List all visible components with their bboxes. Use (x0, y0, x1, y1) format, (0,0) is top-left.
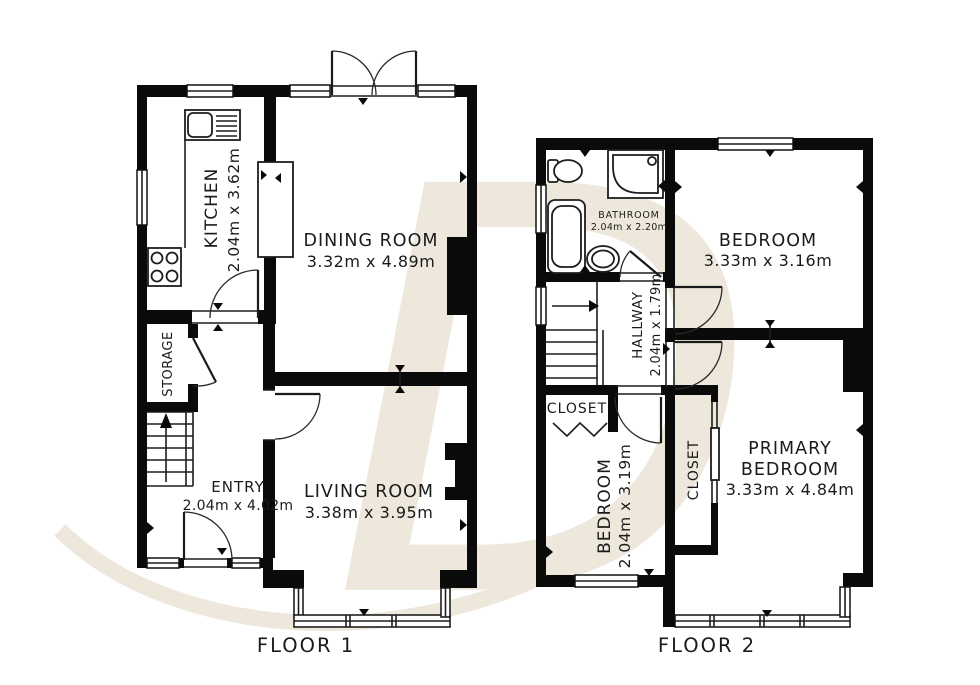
living-room-door (263, 390, 320, 440)
kitchen-left-window (137, 170, 147, 225)
toilet (548, 160, 582, 182)
shower (608, 150, 663, 198)
storage-door (193, 338, 216, 386)
small-bedroom-label: BEDROOM (595, 458, 615, 554)
primary-bedroom-label-line2: BEDROOM (741, 460, 839, 480)
small-bedroom-dims: 2.04m x 3.19m (616, 444, 634, 569)
bathroom-label: BATHROOM (598, 210, 659, 221)
bathroom-left-window (536, 185, 546, 233)
staircase-floor1 (147, 412, 193, 486)
floor1-title: FLOOR 1 (257, 634, 355, 657)
closet-hallway-label: CLOSET (547, 401, 607, 417)
front-door (184, 512, 232, 567)
hallway-label: HALLWAY (630, 291, 646, 359)
bedroom-top-window (718, 138, 793, 150)
hallway-left-window (536, 287, 546, 325)
bedroom-dims: 3.33m x 3.16m (704, 251, 833, 270)
hallway-dims: 2.04m x 1.79m (649, 273, 664, 376)
kitchen-label: KITCHEN (202, 168, 222, 249)
bedroom-label: BEDROOM (719, 231, 817, 251)
dining-top-window-left (290, 85, 330, 97)
dining-top-window-right (418, 85, 455, 97)
closet-primary-label: CLOSET (686, 440, 702, 500)
storage-label: STORAGE (161, 331, 176, 396)
living-room-label: LIVING ROOM (304, 482, 434, 502)
bathtub (548, 200, 585, 273)
living-room-dims: 3.38m x 3.95m (305, 503, 434, 522)
entry-bottom-window-left (147, 558, 179, 568)
serving-hatch (258, 162, 293, 257)
floorplan-drawing: D (0, 0, 980, 685)
kitchen-dims: 2.04m x 3.62m (225, 148, 243, 273)
floor2-title: FLOOR 2 (658, 634, 756, 657)
kitchen-top-window (187, 85, 233, 97)
entry-bottom-window-right (232, 558, 260, 568)
dining-room-dims: 3.32m x 4.89m (307, 252, 436, 271)
entry-label: ENTRY (211, 478, 265, 496)
sink-basin (587, 246, 619, 272)
entry-dims: 2.04m x 4.02m (183, 498, 294, 514)
bathroom-dims: 2.04m x 2.20m (591, 222, 667, 233)
primary-chimney (843, 335, 863, 392)
kitchen-entry-door (192, 270, 258, 323)
dining-room-label: DINING ROOM (304, 231, 439, 251)
primary-bedroom-dims: 3.33m x 4.84m (726, 480, 855, 499)
small-bedroom-window (575, 575, 638, 587)
dining-chimney (447, 237, 467, 315)
stairs-up-arrow (160, 413, 172, 428)
kitchen-sink (185, 110, 240, 140)
floorplan-page: D (0, 0, 980, 685)
stove (148, 248, 181, 286)
primary-bedroom-label-line1: PRIMARY (748, 439, 832, 459)
